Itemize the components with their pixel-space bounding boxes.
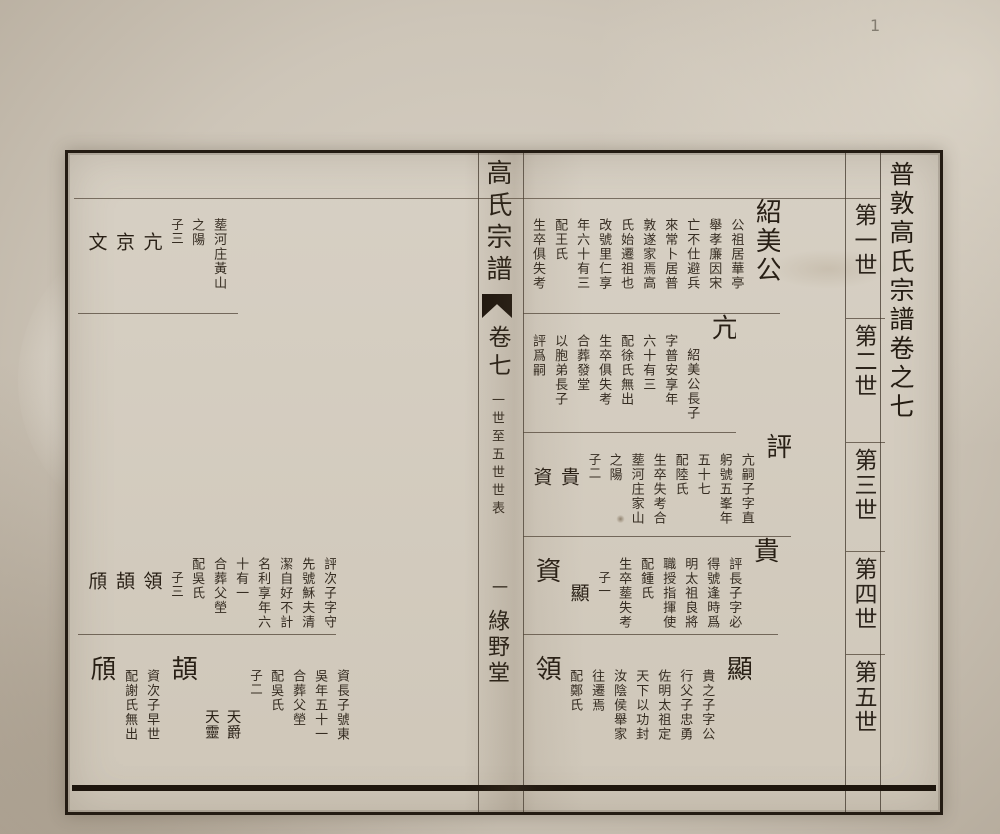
entry-text-column: 之陽 bbox=[608, 453, 622, 536]
generation-band: 顯貴之子字公行父子忠勇佐明太祖定天下以功封汝陰侯舉家往遷焉配鄭氏領 bbox=[523, 635, 751, 788]
entry-text-column: 資長子號東 bbox=[335, 669, 349, 788]
entry-text-column: 頡 bbox=[113, 571, 134, 634]
book-page-spread: 塟河庄黃山之陽子三亢京文評次子字守先號穌夫清潔自好不計名利享年六十有一合葬父塋配… bbox=[65, 150, 943, 815]
center-fold-column: 高氏宗譜卷七一世至五世世表一綠野堂 bbox=[478, 153, 524, 812]
book-title: 高氏宗譜 bbox=[483, 159, 512, 287]
fishtail-mark bbox=[482, 294, 512, 318]
person-name: 顯 bbox=[723, 655, 751, 788]
entry-text-column: 子一 bbox=[596, 571, 610, 634]
entry-text-column: 明太祖良將 bbox=[683, 557, 697, 634]
entry-text-column: 潔自好不計 bbox=[278, 557, 292, 634]
person-name: 頡 bbox=[168, 655, 196, 788]
generation-band: 評次子字守先號穌夫清潔自好不計名利享年六十有一合葬父塋配吳氏子三領頡頎 bbox=[78, 537, 336, 635]
entry-text-column: 生卒俱失考 bbox=[597, 334, 611, 432]
person-name: 紹美公 bbox=[752, 198, 780, 313]
entry-text-column: 佐明太祖定 bbox=[656, 669, 670, 788]
margin-title-column: 普敦高氏宗譜卷之七 bbox=[880, 153, 938, 812]
person-name: 頎 bbox=[87, 655, 115, 788]
entry-text-column: 資 bbox=[530, 467, 551, 536]
entry-text-column: 生卒失考合 bbox=[652, 453, 666, 536]
scanned-genealogy-photo: 1 塟河庄黃山之陽子三亢京文評次子字守先號穌夫清潔自好不計名利享年六十有一合葬父… bbox=[0, 0, 1000, 834]
inner-bottom-rule bbox=[72, 785, 936, 791]
generation-labels-column: 第一世第二世第三世第四世第五世 bbox=[845, 153, 881, 812]
entry-text-column: 文 bbox=[85, 232, 106, 313]
entry-text-column: 六十有三 bbox=[641, 334, 655, 432]
entry-text-column: 天下以功封 bbox=[634, 669, 648, 788]
entry-text-column: 評爲嗣 bbox=[531, 334, 545, 432]
entry-text-column: 生卒俱失考 bbox=[531, 218, 545, 313]
entry-text-column: 天靈 bbox=[202, 709, 218, 788]
entry-text-column: 子二 bbox=[248, 669, 262, 788]
entry-text-column: 評次子字守 bbox=[322, 557, 336, 634]
entry-text-column: 躬號五峯年 bbox=[718, 453, 732, 536]
entry-text-column: 來常卜居普 bbox=[663, 218, 677, 313]
entry-text-column: 天爵 bbox=[224, 709, 240, 788]
entry-text-column: 汝陰侯舉家 bbox=[612, 669, 626, 788]
entry-text-column: 配鄭氏 bbox=[568, 669, 582, 788]
left-page-table: 塟河庄黃山之陽子三亢京文評次子字守先號穌夫清潔自好不計名利享年六十有一合葬父塋配… bbox=[78, 198, 478, 785]
entry-text-column: 亢嗣子字直 bbox=[740, 453, 754, 536]
entry-text-column: 公祖居華亭 bbox=[729, 218, 743, 313]
entry-text-column: 配吳氏 bbox=[190, 557, 204, 634]
entry-text-column: 貴 bbox=[558, 467, 579, 536]
banxin-text: 高氏宗譜卷七一世至五世世表一綠野堂 bbox=[479, 153, 523, 818]
entry-text-column: 配王氏 bbox=[553, 218, 567, 313]
volume-number: 卷七 bbox=[485, 325, 510, 381]
entry-text-column: 舉孝廉因宋 bbox=[707, 218, 721, 313]
entry-text-column: 十有一 bbox=[234, 557, 248, 634]
generation-labels: 第一世第二世第三世第四世第五世 bbox=[846, 198, 881, 813]
entry-text-column: 顯 bbox=[567, 583, 588, 634]
generation-band: 塟河庄黃山之陽子三亢京文 bbox=[78, 198, 238, 314]
entry-text-column: 配徐氏無出 bbox=[619, 334, 633, 432]
entry-text-column: 配謝氏無出 bbox=[123, 669, 137, 788]
entry-text-column: 行父子忠勇 bbox=[678, 669, 692, 788]
right-page-table: 紹美公公祖居華亭舉孝廉因宋亡不仕避兵來常卜居普敦遂家焉高氏始遷祖也改號里仁享年六… bbox=[523, 198, 845, 785]
entry-text-column: 子二 bbox=[586, 453, 600, 536]
person-name: 貴 bbox=[750, 537, 778, 634]
entry-text-column: 亢 bbox=[140, 232, 161, 313]
generation-band: 亢紹美公長子字普安享年六十有三配徐氏無出生卒俱失考合葬發堂以胞弟長子評爲嗣 bbox=[523, 314, 736, 433]
entry-text-column: 生卒塟失考 bbox=[617, 557, 631, 634]
entry-text-column: 紹美公長子 bbox=[685, 348, 699, 432]
generation-band: 紹美公公祖居華亭舉孝廉因宋亡不仕避兵來常卜居普敦遂家焉高氏始遷祖也改號里仁享年六… bbox=[523, 198, 780, 314]
entry-text-column: 子三 bbox=[169, 218, 183, 313]
entry-text-column: 年六十有三 bbox=[575, 218, 589, 313]
person-name: 評 bbox=[763, 433, 791, 536]
entry-text-column: 配吳氏 bbox=[269, 669, 283, 788]
generation-band: 評亢嗣子字直躬號五峯年五十七配陸氏生卒失考合塟河庄家山之陽子二貴資 bbox=[523, 433, 791, 537]
person-name: 領 bbox=[532, 655, 560, 788]
generation-band: 資長子號東吳年五十一合葬父塋配吳氏子二天爵天靈頡資次子早世配謝氏無出頎 bbox=[78, 635, 349, 788]
entry-text-column: 資次子早世 bbox=[145, 669, 159, 788]
section-title: 一世至五世世表 bbox=[490, 393, 505, 519]
entry-text-column: 評長子字必 bbox=[727, 557, 741, 634]
entry-text-column: 以胞弟長子 bbox=[553, 334, 567, 432]
generation-band: 貴評長子字必得號逢時爲明太祖良將職授指揮使配鍾氏生卒塟失考子一顯資 bbox=[523, 537, 778, 635]
entry-text-column: 字普安享年 bbox=[663, 334, 677, 432]
entry-text-column: 先號穌夫清 bbox=[300, 557, 314, 634]
entry-text-column: 往遷焉 bbox=[590, 669, 604, 788]
folio-page-number: 一 bbox=[489, 579, 506, 595]
entry-text-column: 京 bbox=[113, 232, 134, 313]
entry-text-column: 五十七 bbox=[696, 453, 710, 536]
entry-text-column: 塟河庄家山 bbox=[630, 453, 644, 536]
entry-text-column: 名利享年六 bbox=[256, 557, 270, 634]
entry-text-column: 合葬發堂 bbox=[575, 334, 589, 432]
inner-top-rule bbox=[74, 198, 880, 199]
entry-text-column: 職授指揮使 bbox=[661, 557, 675, 634]
entry-text-column: 氏始遷祖也 bbox=[619, 218, 633, 313]
entry-text-column: 得號逢時爲 bbox=[705, 557, 719, 634]
entry-text-column: 配鍾氏 bbox=[639, 557, 653, 634]
entry-text-column: 吳年五十一 bbox=[313, 669, 327, 788]
person-name: 亢 bbox=[708, 314, 736, 432]
margin-title: 普敦高氏宗譜卷之七 bbox=[881, 153, 930, 422]
entry-text-column: 改號里仁享 bbox=[597, 218, 611, 313]
entry-text-column: 貴之子字公 bbox=[700, 669, 714, 788]
entry-text-column: 之陽 bbox=[190, 218, 204, 313]
entry-text-column: 亡不仕避兵 bbox=[685, 218, 699, 313]
person-name: 資 bbox=[532, 557, 560, 634]
entry-text-column: 塟河庄黃山 bbox=[212, 218, 226, 313]
entry-text-column: 合葬父塋 bbox=[291, 669, 305, 788]
entry-text-column: 領 bbox=[140, 571, 161, 634]
entry-text-column: 子三 bbox=[169, 571, 183, 634]
entry-text-column: 敦遂家焉高 bbox=[641, 218, 655, 313]
entry-text-column: 頎 bbox=[85, 571, 106, 634]
hall-name: 綠野堂 bbox=[485, 609, 510, 687]
entry-text-column: 配陸氏 bbox=[674, 453, 688, 536]
entry-text-column: 合葬父塋 bbox=[212, 557, 226, 634]
pencil-page-number: 1 bbox=[870, 16, 880, 35]
